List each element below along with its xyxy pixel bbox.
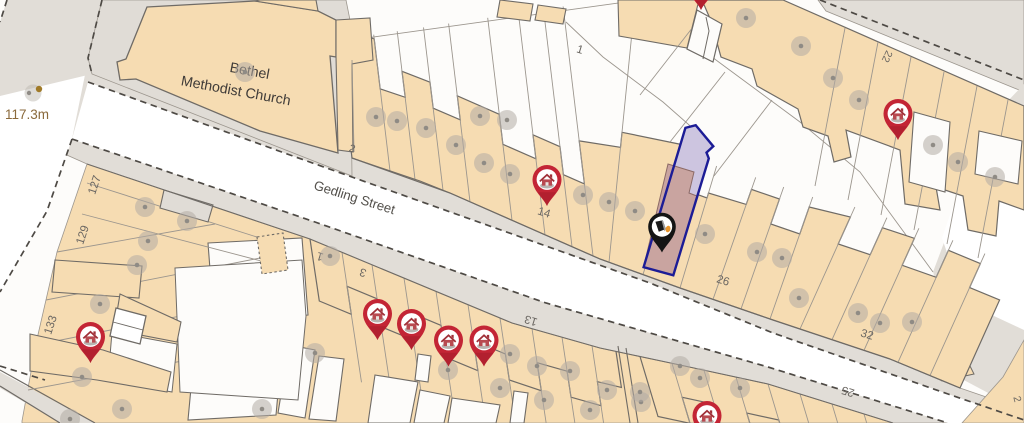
svg-text:117.3m: 117.3m: [5, 107, 49, 122]
